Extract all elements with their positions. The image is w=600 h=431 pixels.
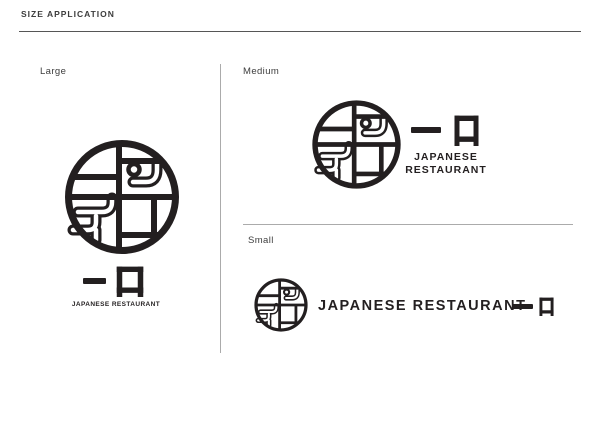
kanji-kuchi-glyph-large bbox=[114, 264, 146, 297]
medium-small-divider bbox=[243, 224, 573, 225]
section-label-medium: Medium bbox=[243, 66, 279, 77]
page-title: SIZE APPLICATION bbox=[21, 9, 115, 19]
logo-mark-icon-small bbox=[253, 277, 309, 333]
kanji-kuchi-glyph-medium bbox=[452, 113, 481, 146]
brand-name-medium: JAPANESE RESTAURANT bbox=[396, 151, 496, 176]
kanji-ichi-glyph-small bbox=[512, 304, 533, 309]
header-rule bbox=[19, 31, 581, 32]
kanji-ichi-glyph-medium bbox=[411, 127, 441, 133]
kanji-ichi-glyph-large bbox=[83, 278, 106, 284]
section-label-small: Small bbox=[248, 235, 274, 246]
logo-mark-icon-large bbox=[62, 137, 182, 257]
logo-mark-icon-medium bbox=[310, 98, 403, 191]
brand-name-medium-line2: RESTAURANT bbox=[396, 164, 496, 177]
section-label-large: Large bbox=[40, 66, 66, 77]
brand-name-small: JAPANESE RESTAURANT bbox=[318, 298, 526, 314]
brand-name-medium-line1: JAPANESE bbox=[396, 151, 496, 164]
size-application-sheet: SIZE APPLICATION Large JAPANESE RESTAURA… bbox=[0, 0, 600, 431]
kanji-kuchi-glyph-small bbox=[538, 296, 555, 316]
brand-name-large: JAPANESE RESTAURANT bbox=[60, 301, 172, 308]
vertical-divider bbox=[220, 64, 221, 353]
